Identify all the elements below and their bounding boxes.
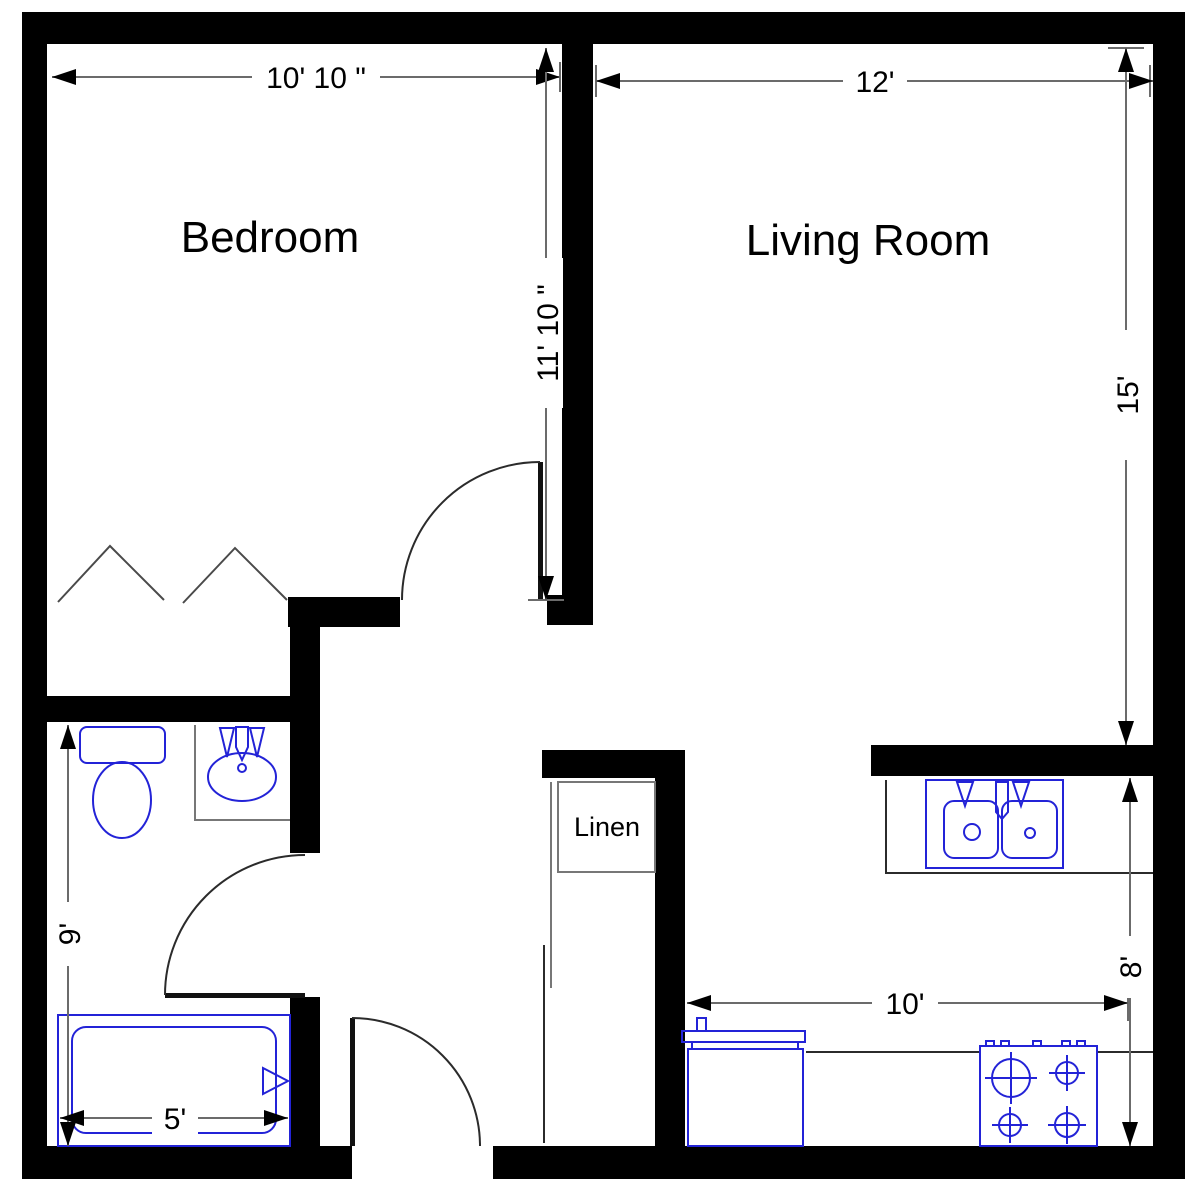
dimension-text: 5' — [164, 1103, 186, 1136]
wall-top — [22, 12, 1185, 44]
dimension-living-height: 15' — [1108, 48, 1145, 745]
dimension-kitchen-width: 10' — [687, 985, 1128, 1021]
stove-control — [986, 1041, 994, 1046]
arrow-up-icon — [60, 725, 76, 749]
arrow-up-icon — [1118, 48, 1134, 72]
entry-door-leaf — [350, 1018, 355, 1146]
kitchen-sink-basin-right — [1002, 801, 1057, 858]
bathroom-door-leaf — [165, 993, 305, 998]
closet-bifold-door-icon — [183, 548, 287, 603]
arrow-up-icon — [1122, 778, 1138, 802]
bedroom-label: Bedroom — [181, 213, 360, 262]
stove-control — [1077, 1041, 1085, 1046]
stove-body — [980, 1046, 1097, 1146]
closet-bifold-door-icon — [58, 546, 164, 602]
arrow-left-icon — [52, 69, 76, 85]
refrigerator-knob — [697, 1018, 706, 1031]
bedroom-closet — [58, 546, 287, 603]
kitchen-fixtures — [682, 780, 1097, 1146]
wall-bathroom-right-upper — [290, 597, 320, 853]
dimension-kitchen-height: 8' — [1114, 778, 1148, 1146]
dimension-text: 8' — [1115, 956, 1148, 978]
dimension-bedroom-width: 10' 10 " — [52, 59, 560, 95]
stove-control — [1033, 1041, 1041, 1046]
toilet-bowl — [93, 762, 151, 838]
wall-bedroom-living-divider — [562, 44, 593, 597]
bedroom-door-swing-arc — [402, 462, 540, 600]
arrow-left-icon — [687, 995, 711, 1011]
bedroom-door — [402, 462, 543, 600]
refrigerator-body — [688, 1049, 803, 1146]
stove-burner — [985, 1052, 1037, 1104]
arrow-left-icon — [596, 73, 620, 89]
bathroom-door — [165, 855, 305, 998]
toilet-tank — [80, 727, 165, 763]
bathroom-door-swing-arc — [165, 855, 305, 995]
sink-drain — [238, 764, 246, 772]
wall-bathroom-top — [47, 696, 320, 722]
floor-plan-canvas: Linen — [0, 0, 1196, 1180]
wall-bathroom-right-lower — [290, 997, 320, 1146]
dimension-text: 15' — [1112, 375, 1145, 414]
wall-bottom-left — [22, 1146, 352, 1179]
wall-right — [1153, 12, 1185, 1179]
kitchen-sink-faucet — [957, 782, 1029, 819]
stove-icon — [980, 1041, 1097, 1146]
kitchen-sink-drain-right — [1025, 828, 1035, 838]
sink-faucet — [220, 727, 264, 760]
wall-bottom-right — [493, 1146, 1185, 1179]
dimension-text: 10' 10 " — [266, 62, 366, 95]
living-room-label: Living Room — [746, 216, 991, 265]
refrigerator-ledge — [692, 1042, 798, 1049]
bathroom-fixtures — [58, 727, 290, 1146]
entry-door — [350, 1018, 480, 1146]
kitchen-sink-icon — [926, 780, 1063, 868]
dimension-living-width: 12' — [596, 63, 1153, 99]
toilet-icon — [80, 727, 165, 838]
dimension-text: 11' 10 " — [532, 284, 565, 382]
arrow-up-icon — [538, 48, 554, 72]
floor-plan: Linen — [0, 0, 1196, 1180]
stove-burner — [1049, 1055, 1085, 1091]
doors — [165, 462, 543, 1146]
entry-door-swing-arc — [352, 1018, 480, 1146]
dimension-text: 12' — [855, 66, 894, 99]
refrigerator-icon — [682, 1018, 805, 1146]
wall-linen-right — [655, 750, 685, 1146]
wall-left — [22, 12, 47, 1179]
stove-burner — [992, 1107, 1028, 1143]
bathroom-sink-icon — [208, 727, 276, 801]
refrigerator-top — [682, 1031, 805, 1042]
dimension-text: 10' — [885, 988, 924, 1021]
stove-control — [1001, 1041, 1009, 1046]
linen-label: Linen — [574, 812, 640, 842]
linen-closet: Linen — [544, 782, 655, 1143]
kitchen-sink-drain-left — [964, 824, 980, 840]
kitchen-sink-basin-left — [944, 801, 998, 858]
wall-kitchen-top — [871, 745, 1153, 776]
arrow-down-icon — [60, 1122, 76, 1146]
dimension-bedroom-height: 11' 10 " — [528, 48, 565, 600]
dimension-text: 9' — [54, 923, 87, 945]
stove-burner — [1048, 1106, 1086, 1144]
arrow-down-icon — [1118, 721, 1134, 745]
stove-control — [1062, 1041, 1070, 1046]
dimension-tub-width: 5' — [60, 1100, 288, 1136]
arrow-down-icon — [1122, 1122, 1138, 1146]
